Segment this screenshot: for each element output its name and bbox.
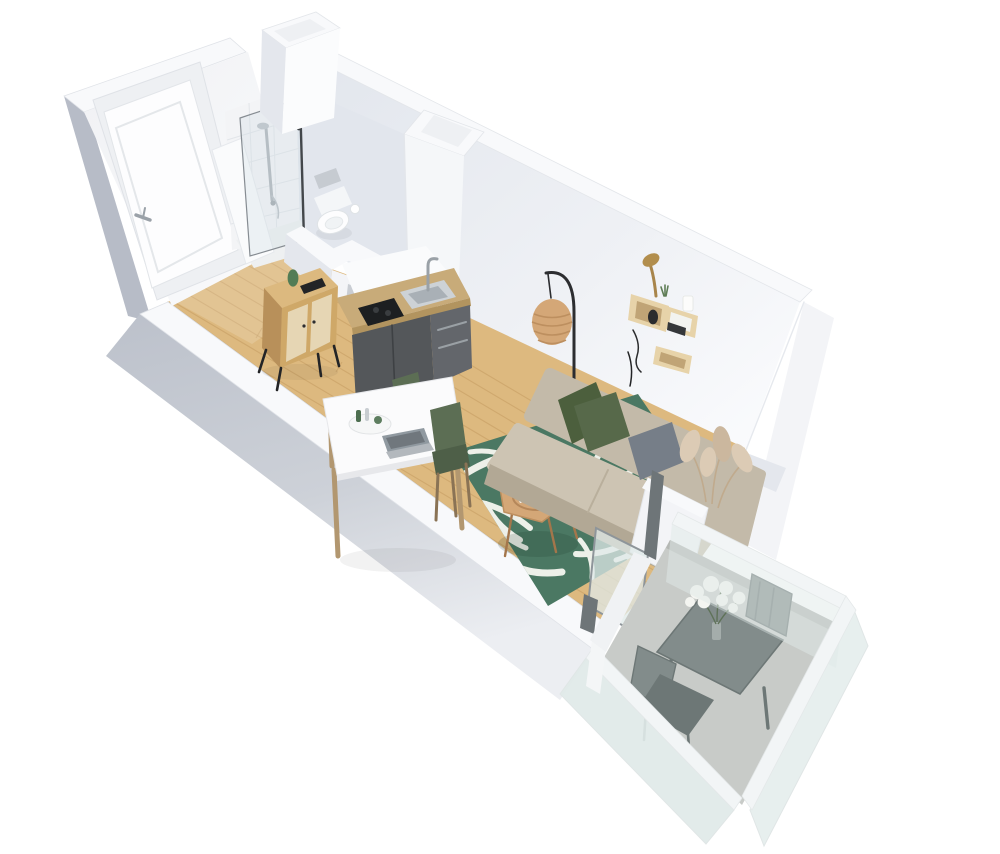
- toilet-paper-holder: [350, 204, 359, 213]
- black-vase: [648, 310, 658, 325]
- wooden-sideboard: [259, 268, 339, 390]
- white-vase: [683, 296, 693, 311]
- bathroom-column: [260, 12, 340, 134]
- lamp-shade: [532, 299, 572, 345]
- apartment-3d-view: [0, 0, 1000, 854]
- floorplan-render: [0, 0, 1000, 854]
- green-vase: [288, 269, 299, 286]
